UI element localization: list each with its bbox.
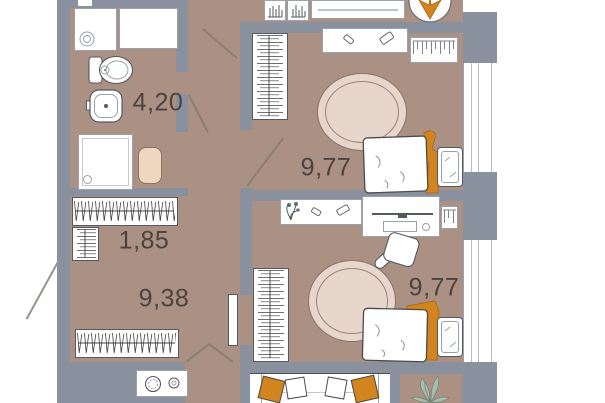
coat-rack-icon: [75, 329, 179, 358]
dresser-icon: [322, 28, 408, 53]
potted-plant-icon: [407, 0, 453, 24]
monitor-stand-icon: [398, 215, 407, 218]
pillow-icon: [351, 375, 380, 403]
clothes-rail-icon: [72, 197, 178, 226]
wall-niche: [78, 0, 92, 6]
radiator-icon: [441, 206, 458, 229]
wardrobe-icon: [253, 268, 289, 362]
nightstand-icon: [437, 317, 463, 357]
wall: [463, 172, 497, 240]
countertop-icon: [119, 8, 178, 49]
wall: [240, 188, 252, 295]
wall: [57, 0, 70, 365]
radiator-icon: [410, 37, 458, 63]
stove-icon: [136, 370, 188, 397]
bookshelf-icon: [264, 0, 286, 21]
room-label-bedroom-1: 9,77: [301, 154, 352, 183]
shower-icon: [78, 134, 133, 190]
wall: [240, 22, 252, 130]
room-label-hallway: 9,38: [139, 285, 190, 314]
room-label-bathroom: 4,20: [133, 89, 184, 118]
toilet-icon: [88, 54, 134, 86]
door-leaf-icon: [228, 294, 238, 346]
wall: [240, 373, 250, 403]
nightstand-icon: [437, 147, 463, 187]
pillow-icon: [258, 376, 286, 403]
wall: [240, 345, 252, 362]
doorway-floor: [185, 362, 240, 403]
wardrobe-icon: [252, 33, 288, 120]
desk-chair-icon: [370, 230, 426, 276]
room-label-bedroom-2: 9,77: [409, 274, 460, 303]
console-shelf-icon: [280, 199, 362, 225]
potted-plant-icon: [400, 374, 462, 403]
floor-plan: 4,20 1,85 9,38 9,77: [0, 0, 605, 403]
balcony-floor: [400, 374, 462, 403]
window-icon: [463, 63, 497, 172]
bath-mat-icon: [138, 147, 162, 184]
pillow-icon: [324, 376, 347, 399]
wall: [463, 12, 497, 63]
door-swing-outside: [26, 258, 61, 319]
room-label-closet: 1,85: [119, 227, 170, 256]
bookshelf-icon: [287, 0, 309, 21]
table-icon: [311, 0, 405, 19]
window-icon: [463, 240, 497, 362]
sink-icon: [86, 88, 124, 124]
washing-machine-icon: [74, 8, 117, 51]
storage-rack-icon: [72, 227, 99, 261]
pillow-icon: [285, 377, 308, 400]
sofa-icon: [250, 373, 390, 403]
